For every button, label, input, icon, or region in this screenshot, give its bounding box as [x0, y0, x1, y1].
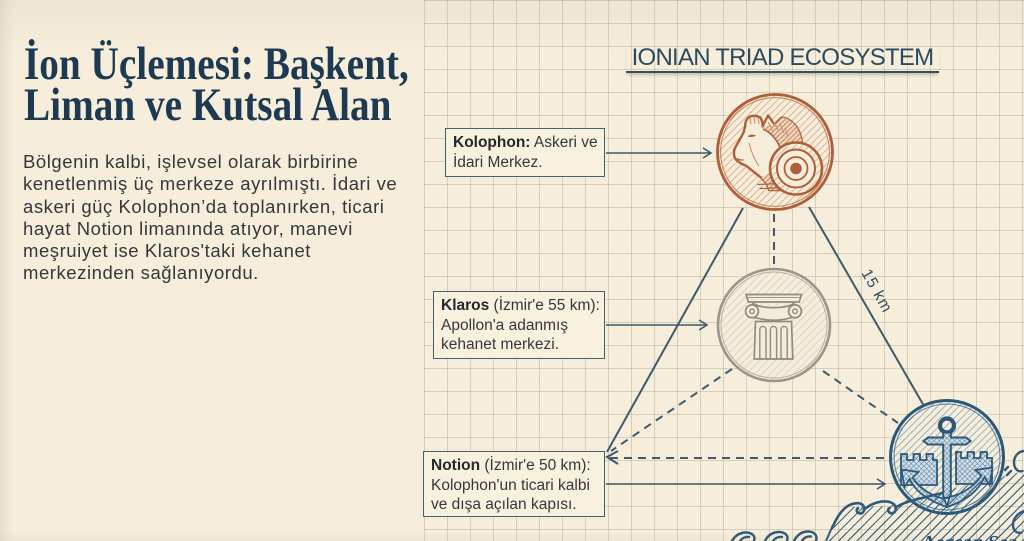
svg-text:Aegean Sea: Aegean Sea — [922, 533, 1018, 541]
svg-text:15 km: 15 km — [858, 266, 896, 316]
